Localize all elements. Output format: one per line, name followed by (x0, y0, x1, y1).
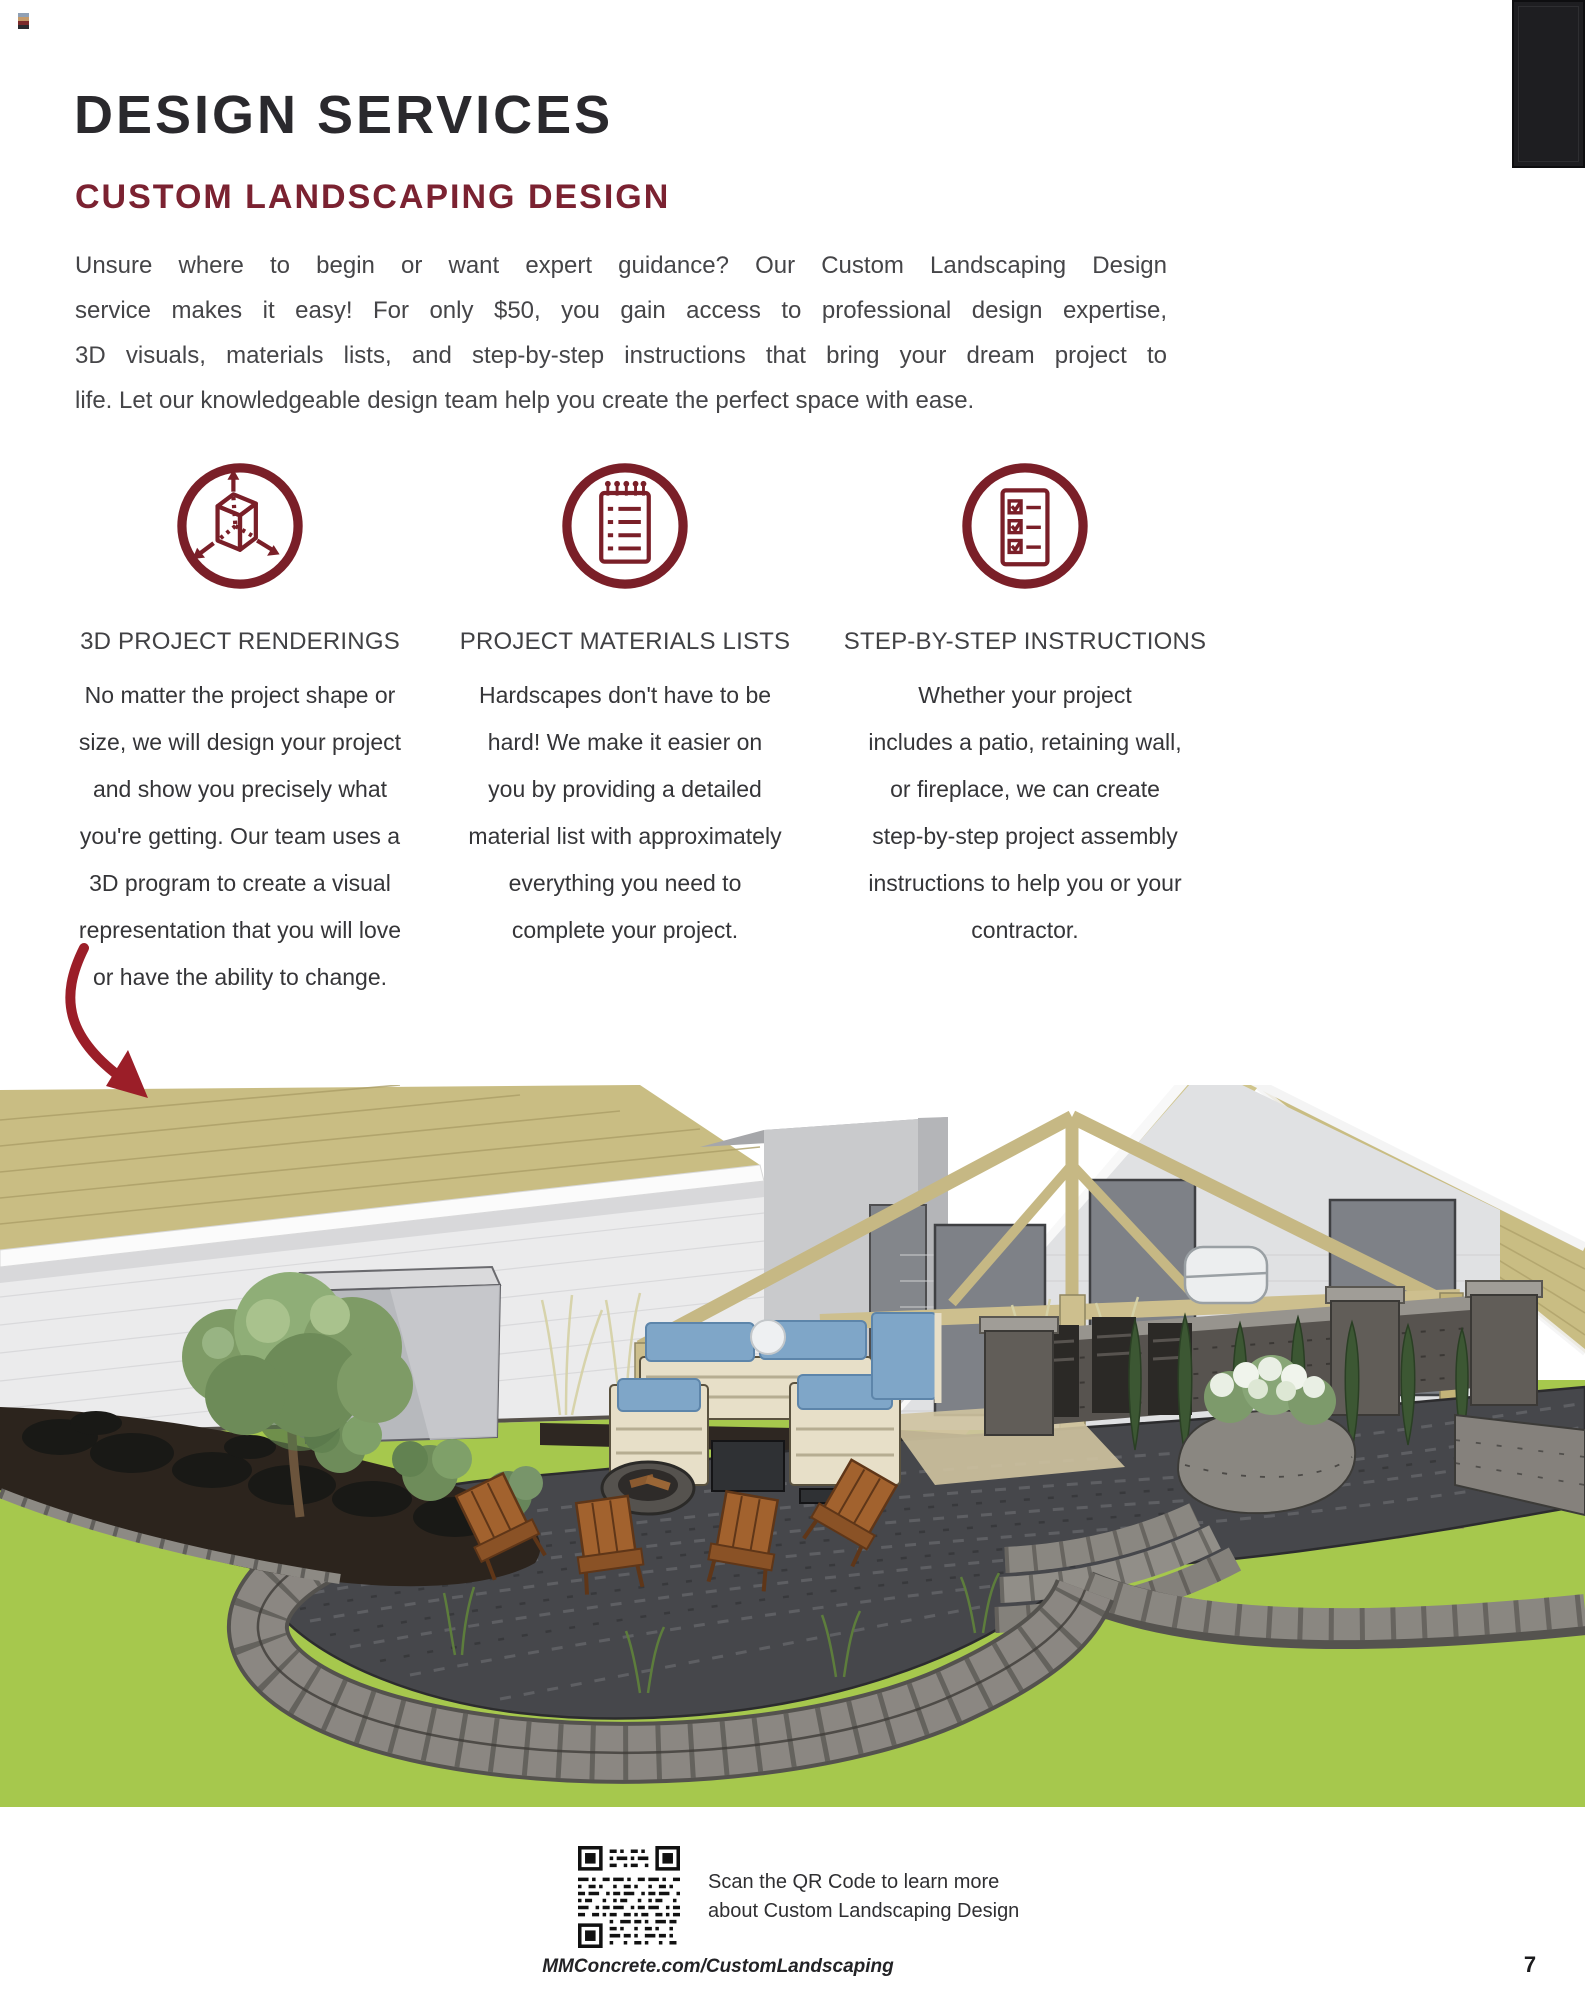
feature-heading: 3D PROJECT RENDERINGS (45, 628, 435, 656)
feature-step-by-step: STEP-BY-STEP INSTRUCTIONS Whether your p… (830, 460, 1220, 1020)
3d-cube-icon (174, 460, 306, 592)
checklist-icon (959, 460, 1091, 592)
feature-body: Hardscapes don't have to behard! We make… (430, 672, 820, 954)
qr-caption-line: about Custom Landscaping Design (708, 1897, 1019, 1926)
materials-list-icon (559, 460, 691, 592)
page-number: 7 (1510, 1952, 1550, 1978)
catalog-page: DESIGN SERVICES CUSTOM LANDSCAPING DESIG… (0, 0, 1585, 2000)
feature-body: Whether your projectincludes a patio, re… (830, 672, 1220, 954)
landscape-rendering-image (0, 1085, 1585, 1807)
footer-url: MMConcrete.com/CustomLandscaping (518, 1956, 918, 1978)
feature-3d-renderings: 3D PROJECT RENDERINGS No matter the proj… (45, 460, 435, 1020)
feature-materials-lists: PROJECT MATERIALS LISTS Hardscapes don't… (430, 460, 820, 1020)
qr-caption: Scan the QR Code to learn more about Cus… (708, 1868, 1019, 1926)
qr-caption-line: Scan the QR Code to learn more (708, 1868, 1019, 1897)
curved-arrow-icon (52, 938, 184, 1106)
page-subtitle: CUSTOM LANDSCAPING DESIGN (75, 178, 670, 217)
page-title: DESIGN SERVICES (74, 84, 613, 146)
intro-line: Unsure where to begin or want expert gui… (75, 243, 1167, 288)
intro-line: life. Let our knowledgeable design team … (75, 378, 1167, 423)
qr-code (578, 1846, 680, 1948)
intro-line: service makes it easy! For only $50, you… (75, 288, 1167, 333)
feature-heading: PROJECT MATERIALS LISTS (430, 628, 820, 656)
feature-heading: STEP-BY-STEP INSTRUCTIONS (830, 628, 1220, 656)
black-corner-block (1512, 0, 1585, 168)
intro-line: 3D visuals, materials lists, and step-by… (75, 333, 1167, 378)
intro-paragraph: Unsure where to begin or want expert gui… (75, 243, 1167, 423)
page-corner-glyph (18, 13, 29, 29)
